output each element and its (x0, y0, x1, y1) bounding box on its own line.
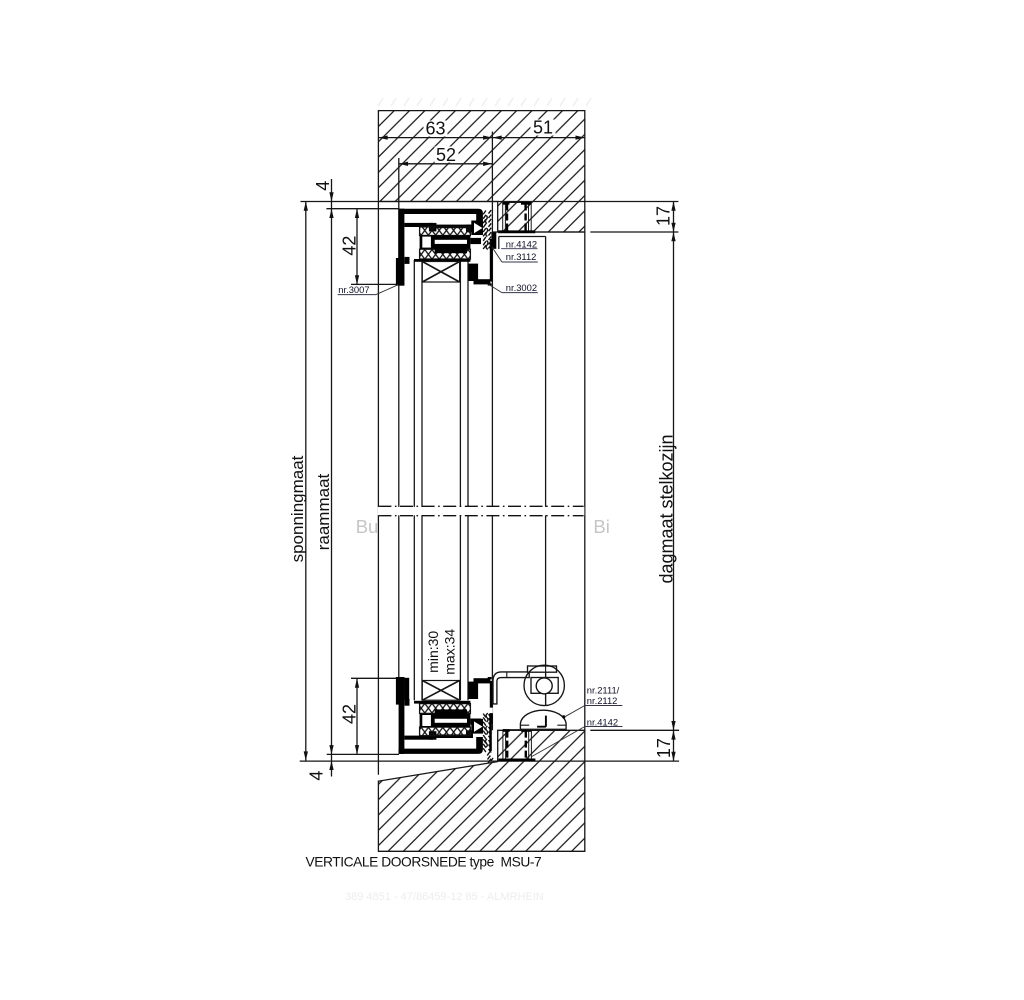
svg-text:nr.2111/: nr.2111/ (587, 684, 620, 695)
svg-text:51: 51 (533, 118, 553, 138)
svg-text:4: 4 (306, 771, 326, 781)
svg-text:VERTICALE DOORSNEDE type MSU-: VERTICALE DOORSNEDE type MSU-7 (306, 855, 542, 870)
svg-text:Bu: Bu (356, 516, 379, 537)
svg-text:4: 4 (313, 181, 333, 191)
svg-text:raammaat: raammaat (314, 473, 333, 550)
svg-text:17: 17 (654, 738, 674, 758)
svg-text:nr.3007: nr.3007 (338, 284, 369, 295)
svg-text:dagmaat stelkozijn: dagmaat stelkozijn (656, 434, 676, 583)
svg-text:max:34: max:34 (441, 629, 457, 675)
svg-text:nr.4142: nr.4142 (587, 716, 618, 727)
svg-text:nr.4142: nr.4142 (506, 238, 537, 249)
svg-text:42: 42 (340, 704, 360, 724)
svg-text:min:30: min:30 (425, 631, 441, 673)
svg-text:42: 42 (340, 236, 360, 256)
svg-text:nr.2112: nr.2112 (587, 695, 618, 706)
svg-text:389 4851 - 47/86459-12 85 -: 389 4851 - 47/86459-12 85 - ALMRHEIN (345, 891, 544, 903)
svg-text:17: 17 (654, 206, 674, 226)
svg-text:52: 52 (436, 145, 456, 165)
svg-text:nr.3002: nr.3002 (506, 282, 537, 293)
svg-text:nr.3112: nr.3112 (506, 251, 537, 262)
svg-text:63: 63 (425, 119, 445, 139)
svg-text:Bi: Bi (593, 516, 609, 537)
svg-text:sponningmaat: sponningmaat (288, 455, 307, 562)
